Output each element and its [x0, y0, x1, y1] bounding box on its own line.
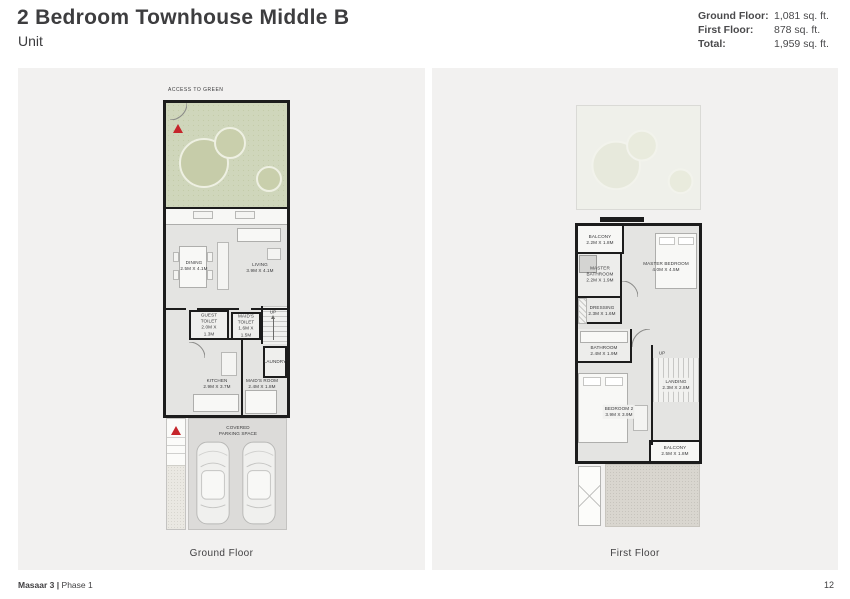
page-title: 2 Bedroom Townhouse Middle B	[17, 6, 349, 30]
footer-separator: |	[57, 580, 59, 590]
gf-dining-label: DINING 2.5M X 4.1M	[180, 260, 207, 272]
kitchen-counter	[193, 394, 239, 412]
door-arc	[632, 329, 650, 347]
gf-stairs-up-label: UP	[270, 310, 276, 315]
gf-kitchen-label: KITCHEN 2.9M X 3.7M	[203, 378, 230, 390]
ff-dressing-label: DRESSING 2.3M X 1.6M	[588, 305, 615, 317]
car-icon	[240, 440, 278, 526]
first-floor-panel: BALCONY 2.2M X 1.8M MASTER BEDROOM 4.0M …	[432, 68, 838, 570]
wardrobe	[578, 298, 587, 324]
car-icon	[194, 440, 232, 526]
bathtub	[580, 331, 628, 343]
ground-floor-plan: ACCESS TO GREEN DINING	[163, 100, 290, 532]
first-floor-plan: BALCONY 2.2M X 1.8M MASTER BEDROOM 4.0M …	[575, 105, 702, 530]
ff-master-bathroom-label: MASTER BATHROOM 2.2M X 1.9M	[585, 266, 615, 285]
dining-chair	[173, 270, 179, 280]
interior-wall	[241, 340, 243, 416]
faded-tree-icons	[577, 106, 700, 209]
kitchen-island	[221, 352, 237, 376]
gate-door-arc	[170, 103, 187, 120]
gf-caption: Ground Floor	[18, 548, 425, 559]
ff-balcony-rear-label: BALCONY 2.5M X 1.8M	[661, 445, 688, 457]
tv-unit	[217, 242, 229, 290]
footer-phase: Phase 1	[62, 580, 93, 590]
step-line	[167, 445, 185, 446]
ground-floor-panel: ACCESS TO GREEN DINING	[18, 68, 425, 570]
gf-laundry-label: LAUNDRY	[264, 359, 287, 365]
armchair	[267, 248, 281, 260]
gf-maids-room-label: MAID'S ROOM 2.4M X 1.8M	[246, 378, 278, 390]
stat-value-first: 878 sq. ft.	[774, 23, 829, 37]
ff-caption: First Floor	[432, 548, 838, 559]
access-to-green-label: ACCESS TO GREEN	[168, 87, 223, 93]
gf-deck	[166, 207, 287, 225]
interior-wall	[651, 345, 653, 445]
stat-label-first: First Floor:	[698, 23, 774, 37]
side-planter	[167, 465, 185, 529]
step-line	[167, 453, 185, 454]
footer: Masaar 3 | Phase 1	[18, 580, 93, 590]
step-line	[167, 437, 185, 438]
dining-chair	[207, 252, 213, 262]
ff-bedroom2-label: BEDROOM 2 3.9M X 3.9M	[603, 405, 635, 419]
entry-arrow-icon	[173, 124, 183, 133]
ff-stairs-up-label: UP	[659, 351, 665, 356]
footer-project: Masaar 3	[18, 580, 54, 590]
area-stats: Ground Floor: 1,081 sq. ft. First Floor:…	[698, 9, 829, 51]
roof-shaft	[578, 466, 601, 526]
maids-bed	[245, 390, 277, 414]
ff-bathroom-label: BATHROOM 2.4M X 1.9M	[590, 345, 617, 357]
desk	[633, 405, 648, 431]
stat-label-ground: Ground Floor:	[698, 9, 774, 23]
ff-master-bedroom-label: MASTER BEDROOM 4.0M X 4.5M	[643, 261, 689, 273]
stat-value-total: 1,959 sq. ft.	[774, 37, 829, 51]
gf-garden	[166, 103, 287, 207]
door-arc	[622, 281, 638, 297]
parking-entry-arrow-icon	[171, 426, 181, 435]
pillow	[678, 237, 694, 245]
stat-value-ground: 1,081 sq. ft.	[774, 9, 829, 23]
gf-parking-label: COVERED PARKING SPACE	[216, 425, 260, 437]
ff-landing-label: LANDING 2.3M X 2.8M	[660, 378, 691, 392]
wall-stub	[600, 217, 644, 222]
roof-gravel	[605, 464, 700, 527]
stairs-direction-line	[273, 318, 274, 340]
dining-chair	[207, 270, 213, 280]
interior-wall	[197, 308, 239, 310]
interior-wall	[166, 308, 186, 310]
pillow	[605, 377, 623, 386]
pillow	[583, 377, 601, 386]
gf-maids-toilet-label: MAID'S TOILET 1.6M X 1.5M	[233, 314, 259, 339]
deck-planter	[235, 211, 255, 219]
deck-planter	[193, 211, 213, 219]
gf-living-label: LIVING 3.9M X 4.1M	[246, 262, 273, 274]
gf-guest-toilet-label: GUEST TOILET 2.0M X 1.3M	[196, 313, 222, 338]
dining-chair	[173, 252, 179, 262]
ff-balcony-front-label: BALCONY 2.2M X 1.8M	[585, 234, 615, 246]
door-arc	[189, 342, 205, 358]
stat-label-total: Total:	[698, 37, 774, 51]
ff-garden-below	[576, 105, 701, 210]
stairs-arrowhead	[271, 315, 275, 319]
page-subtitle: Unit	[18, 33, 43, 49]
pillow	[659, 237, 675, 245]
page-number: 12	[824, 580, 834, 590]
sofa	[237, 228, 281, 242]
